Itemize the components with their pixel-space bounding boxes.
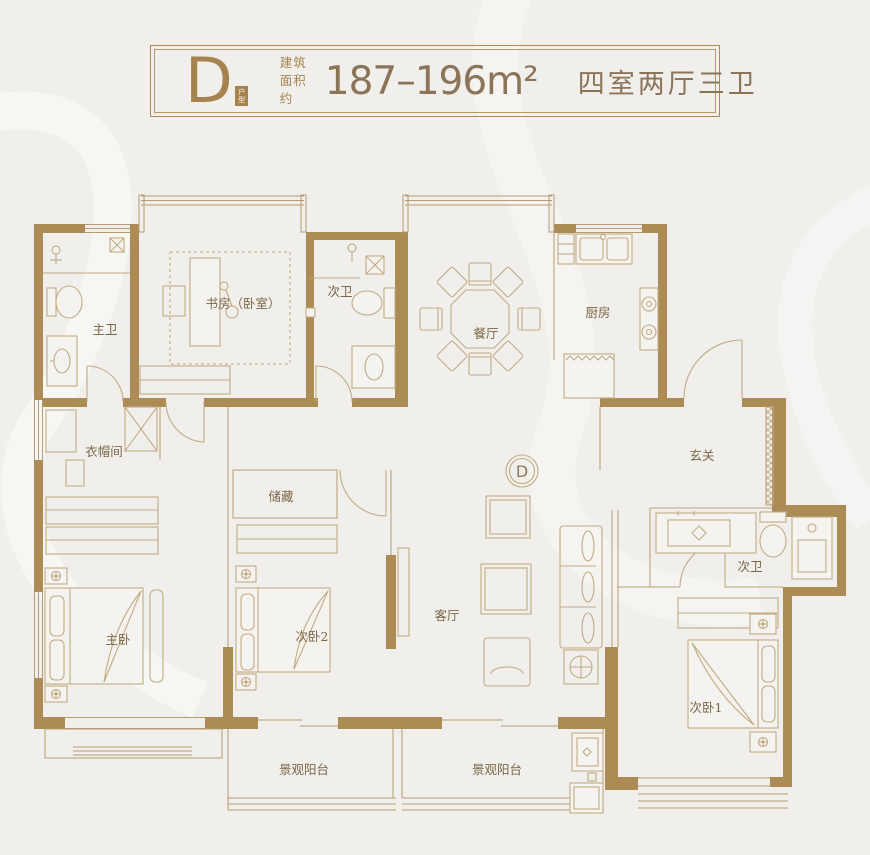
bath-top-door xyxy=(316,366,352,402)
room-label-cloakroom: 衣帽间 xyxy=(85,444,123,459)
room-label-foyer: 玄关 xyxy=(689,448,714,463)
chair-icon xyxy=(518,308,540,330)
bedroom2-door xyxy=(340,470,386,516)
room-label-study: 书房（卧室） xyxy=(205,296,280,311)
floorplan-drawing: D 主卫 书房（卧室） 次卫 餐厅 厨房 玄关 衣帽间 储藏 主卧 次卧2 客厅… xyxy=(0,160,870,855)
room-label-bedroom2: 次卧2 xyxy=(296,629,329,644)
area-prefix-line2: 面积约 xyxy=(280,72,319,108)
fridge-icon xyxy=(564,354,614,398)
room-label-living: 客厅 xyxy=(434,608,459,623)
room-label-bedroom1: 次卧1 xyxy=(690,700,723,715)
area-prefix: 建筑 面积约 xyxy=(280,54,319,108)
dining-fixtures xyxy=(420,263,540,375)
unit-header-inner: D 户型 建筑 面积约 187–196m² 四室两厅三卫 xyxy=(154,49,716,113)
room-label-balcony1: 景观阳台 xyxy=(279,762,329,777)
area-value: 187–196m² xyxy=(325,59,538,104)
room-label-kitchen: 厨房 xyxy=(585,305,610,320)
unit-type-badge: 户型 xyxy=(235,86,248,106)
armchair-icon xyxy=(484,638,530,686)
sofa-icon xyxy=(560,526,602,648)
room-label-master-bedroom: 主卧 xyxy=(105,632,130,647)
master-suite-door xyxy=(166,402,204,442)
unit-marker: D xyxy=(506,455,538,487)
sink-icon xyxy=(352,346,395,388)
unit-letter: D xyxy=(185,52,233,110)
study-fixtures xyxy=(140,252,290,394)
master-bath-fixtures xyxy=(43,238,130,386)
bench-icon xyxy=(150,590,163,682)
unit-header: D 户型 建筑 面积约 187–196m² 四室两厅三卫 xyxy=(150,45,720,117)
room-label-bath-right: 次卫 xyxy=(737,559,762,574)
master-bedroom-fixtures xyxy=(45,497,163,702)
bedroom2-fixtures xyxy=(236,525,337,690)
layout-text: 四室两厅三卫 xyxy=(578,62,758,101)
room-label-bath-top: 次卫 xyxy=(327,284,352,299)
tv-cabinet-icon xyxy=(398,548,409,636)
shelf-icon xyxy=(46,410,76,452)
room-label-dining: 餐厅 xyxy=(473,326,498,341)
unit-letter-group: D 户型 xyxy=(185,52,248,110)
toilet-icon xyxy=(384,288,395,318)
doors xyxy=(87,340,742,587)
toilet-icon xyxy=(760,512,786,522)
chair-icon xyxy=(420,308,442,330)
toilet-icon xyxy=(47,288,56,316)
shower-icon xyxy=(52,246,60,254)
balcony-fixtures xyxy=(570,733,603,813)
shower-icon xyxy=(348,244,356,252)
living-fixtures xyxy=(398,496,602,686)
chair-icon xyxy=(469,263,491,285)
room-label-storage: 储藏 xyxy=(268,489,294,504)
area-prefix-line1: 建筑 xyxy=(280,54,319,72)
master-bath-door xyxy=(87,366,123,402)
room-label-balcony2: 景观阳台 xyxy=(472,762,522,777)
chair-icon xyxy=(469,353,491,375)
entry-door xyxy=(684,340,742,398)
coffee-table-icon xyxy=(481,564,531,614)
unit-marker-letter: D xyxy=(516,462,528,481)
bedroom1-fixtures xyxy=(678,598,778,752)
room-label-master-bath: 主卫 xyxy=(92,322,117,337)
floorplan-page: D 户型 建筑 面积约 187–196m² 四室两厅三卫 xyxy=(0,0,870,855)
table-icon xyxy=(486,496,530,538)
